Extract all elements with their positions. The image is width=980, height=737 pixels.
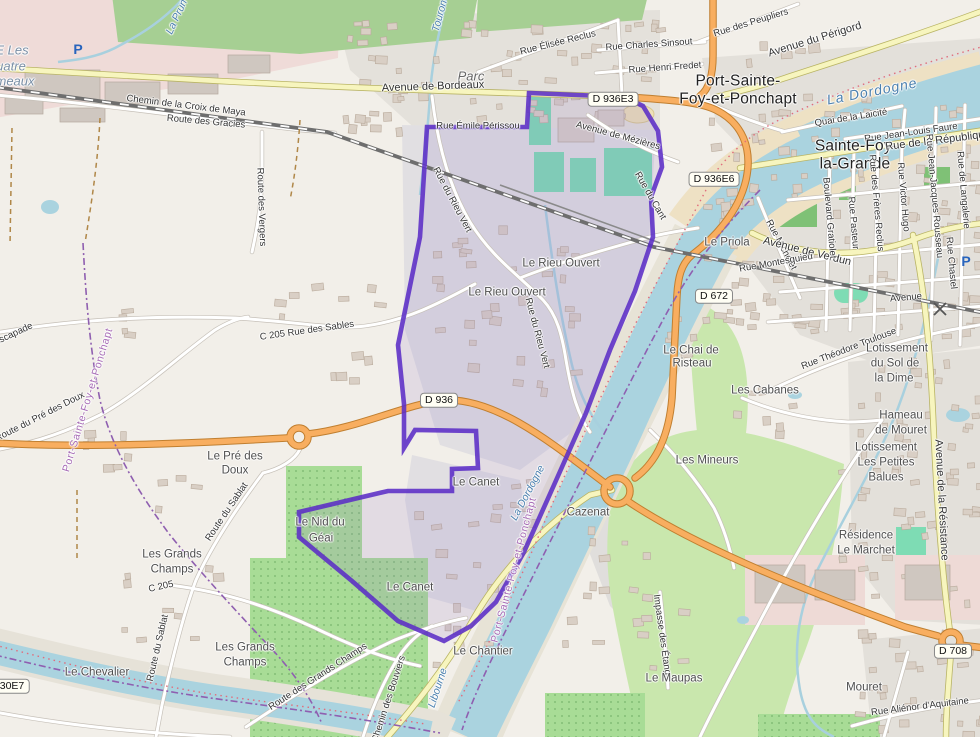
map-graphics (0, 0, 980, 737)
map-canvas[interactable]: E LesuatremeauxLa PrunPChemin de la Croi… (0, 0, 980, 737)
